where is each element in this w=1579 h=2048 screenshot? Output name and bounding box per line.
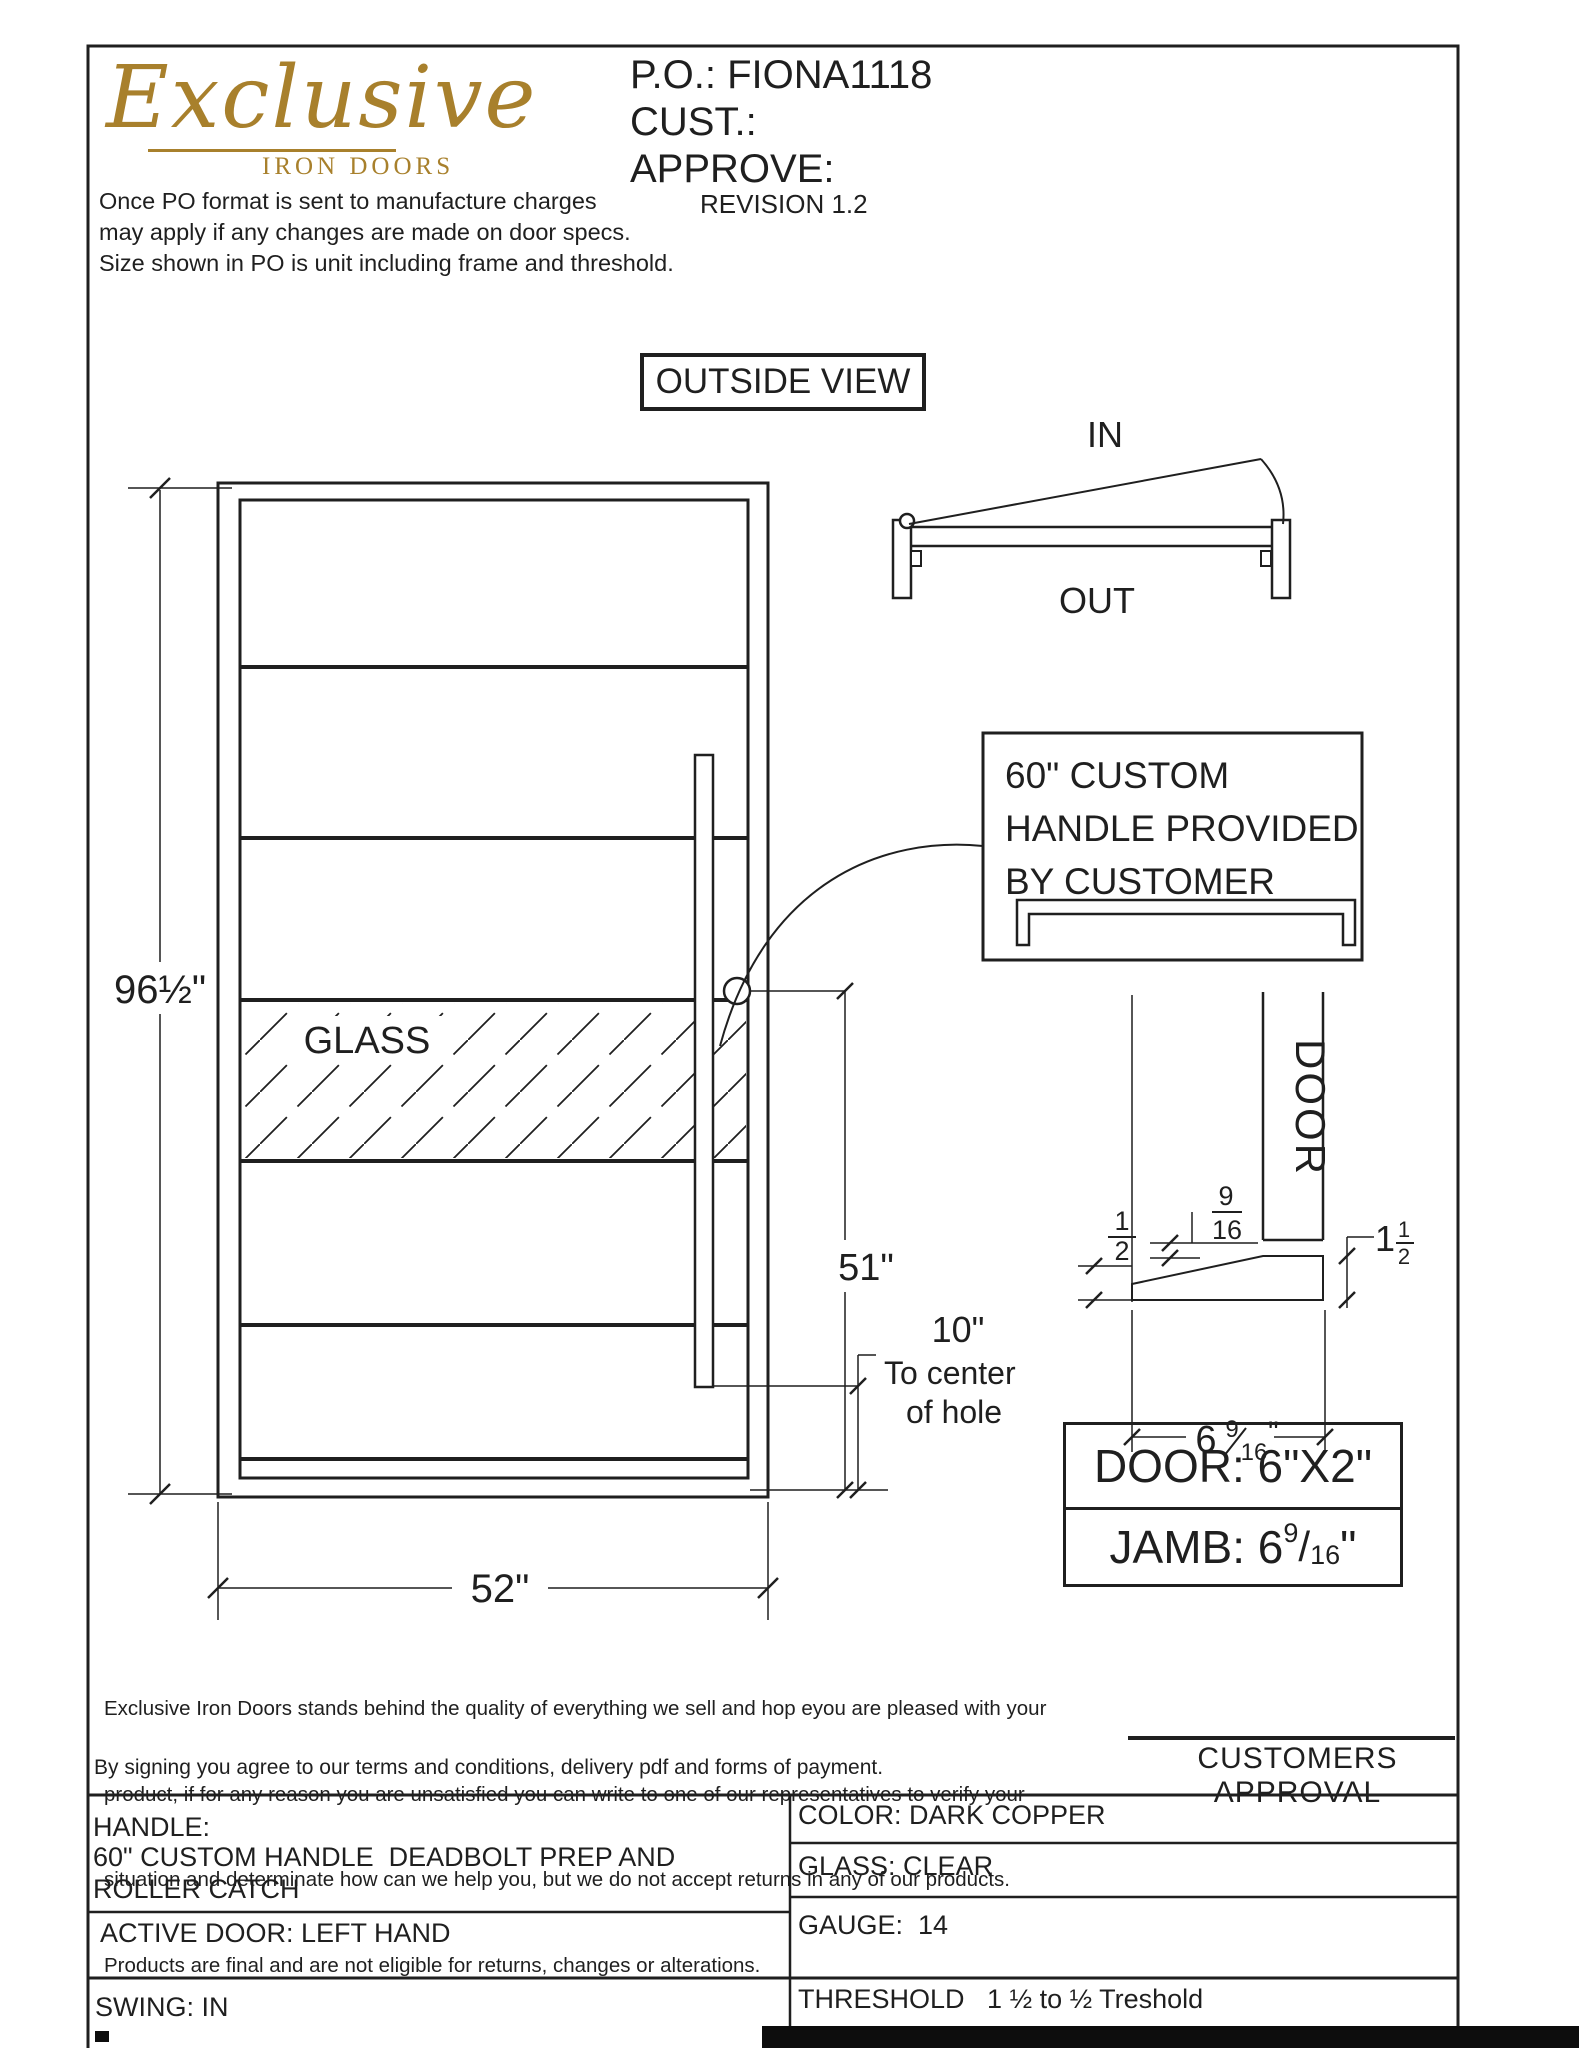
- return-policy: Exclusive Iron Doors stands behind the q…: [104, 1638, 1046, 2037]
- hole-note-1: To center: [884, 1355, 1016, 1391]
- jamb-frac-den: 16: [1310, 1540, 1340, 1571]
- glass-label: GLASS: [304, 1020, 431, 1062]
- door-elevation: GLASS: [218, 483, 768, 1497]
- scan-artifact-bar: [762, 2026, 1579, 2048]
- left-jamb: [893, 520, 911, 598]
- order-header: P.O.: FIONA1118 CUST.: APPROVE:: [630, 52, 932, 193]
- detail-door-label: DOOR: [1287, 1039, 1334, 1177]
- po-number: P.O.: FIONA1118: [630, 52, 932, 99]
- active-door-cell: ACTIVE DOOR: LEFT HAND: [100, 1918, 451, 1949]
- policy-line: Exclusive Iron Doors stands behind the q…: [104, 1695, 1046, 1724]
- dim-51-label: 51": [838, 1247, 894, 1289]
- swing-arc: [1261, 459, 1284, 524]
- po-notice: Once PO format is sent to manufacture ch…: [99, 186, 674, 279]
- scan-artifact-dot: [95, 2031, 109, 2042]
- dim-width: 52": [208, 1502, 778, 1620]
- threshold-cell: THRESHOLD 1 ½ to ½ Treshold: [798, 1984, 1203, 2015]
- dim-1half-whole: 1: [1375, 1218, 1395, 1259]
- handle-callout: 60" CUSTOM HANDLE PROVIDED BY CUSTOMER: [720, 733, 1362, 1046]
- threshold-label: THRESHOLD: [798, 1984, 965, 2014]
- callout-leader: [720, 845, 983, 1046]
- dim-1half-num: 1: [1398, 1217, 1410, 1242]
- glass-cell: GLASS: CLEAR: [798, 1851, 993, 1882]
- outside-view-text: OUTSIDE VIEW: [656, 362, 911, 402]
- threshold-value: 1 ½ to ½ Treshold: [987, 1984, 1203, 2014]
- door-frame-outer: [218, 483, 768, 1497]
- callout-line3: BY CUSTOMER: [1005, 861, 1275, 902]
- jamb-unit: ": [1340, 1520, 1356, 1574]
- handle-label: HANDLE:: [93, 1812, 210, 1843]
- po-drawing-sheet: IN OUT GLASS: [0, 0, 1579, 2048]
- revision-label: REVISION 1.2: [700, 189, 868, 220]
- door-slab: [240, 500, 748, 1478]
- dim-height-label: 96½": [114, 968, 206, 1012]
- jamb-size-text: JAMB: 6: [1110, 1520, 1284, 1574]
- swing-out-label: OUT: [1059, 580, 1135, 621]
- door-size-text: DOOR: 6"X2": [1094, 1439, 1372, 1493]
- threshold-wedge: [1132, 1256, 1323, 1300]
- dim-10-label: 10": [932, 1309, 985, 1350]
- door-size-box: DOOR: 6"X2": [1063, 1422, 1403, 1510]
- notice-line: Once PO format is sent to manufacture ch…: [99, 186, 674, 217]
- hinge-point: [900, 514, 914, 528]
- swing-in-label: IN: [1087, 414, 1123, 455]
- customers-approval-label: CUSTOMERS APPROVAL: [1135, 1742, 1460, 1810]
- brand-logo-underline: [148, 149, 396, 152]
- handle-profile: [1017, 900, 1355, 945]
- right-jamb: [1272, 520, 1290, 598]
- frac-916-den: 16: [1212, 1215, 1242, 1245]
- handle-value-line1: 60" CUSTOM HANDLE DEADBOLT PREP AND: [93, 1842, 675, 1873]
- approve-label: APPROVE:: [630, 146, 932, 193]
- frac-12-den: 2: [1114, 1236, 1129, 1266]
- jamb-frac-num: 9: [1283, 1518, 1298, 1549]
- notice-line: Size shown in PO is unit including frame…: [99, 248, 674, 279]
- gauge-cell: GAUGE: 14: [798, 1910, 948, 1941]
- dim-1half-den: 2: [1398, 1244, 1410, 1269]
- handle-bar: [695, 755, 713, 1387]
- customer-label: CUST.:: [630, 99, 932, 146]
- callout-line1: 60" CUSTOM: [1005, 755, 1229, 796]
- dim-height: 96½": [106, 478, 232, 1504]
- swing-cell: SWING: IN: [95, 1992, 229, 2023]
- frac-12-num: 1: [1114, 1206, 1129, 1236]
- hole-note-2: of hole: [906, 1394, 1002, 1430]
- outside-view-label: OUTSIDE VIEW: [640, 353, 926, 411]
- handle-hole: [724, 978, 750, 1004]
- jamb-size-box: JAMB: 69/16": [1063, 1507, 1403, 1587]
- callout-line2: HANDLE PROVIDED: [1005, 808, 1359, 849]
- color-cell: COLOR: DARK COPPER: [798, 1800, 1106, 1831]
- policy-line: Products are final and are not eligible …: [104, 1952, 1046, 1981]
- jamb-frac-slash: /: [1298, 1523, 1310, 1571]
- dim-width-label: 52": [471, 1567, 530, 1611]
- handle-value-line2: ROLLER CATCH: [93, 1874, 300, 1905]
- threshold-detail: DOOR 9 16 1 2 1 1: [1078, 992, 1414, 1466]
- brand-logo-subtitle: IRON DOORS: [262, 153, 454, 181]
- signing-note: By signing you agree to our terms and co…: [94, 1756, 883, 1780]
- dim-51: 51": [750, 983, 894, 1498]
- swing-line: [909, 459, 1261, 524]
- dim-10: 10" To center of hole: [713, 1309, 1016, 1498]
- frac-916-num: 9: [1218, 1181, 1233, 1211]
- notice-line: may apply if any changes are made on doo…: [99, 217, 674, 248]
- brand-logo-script: Exclusive: [106, 48, 537, 148]
- swing-diagram: IN OUT: [893, 414, 1290, 621]
